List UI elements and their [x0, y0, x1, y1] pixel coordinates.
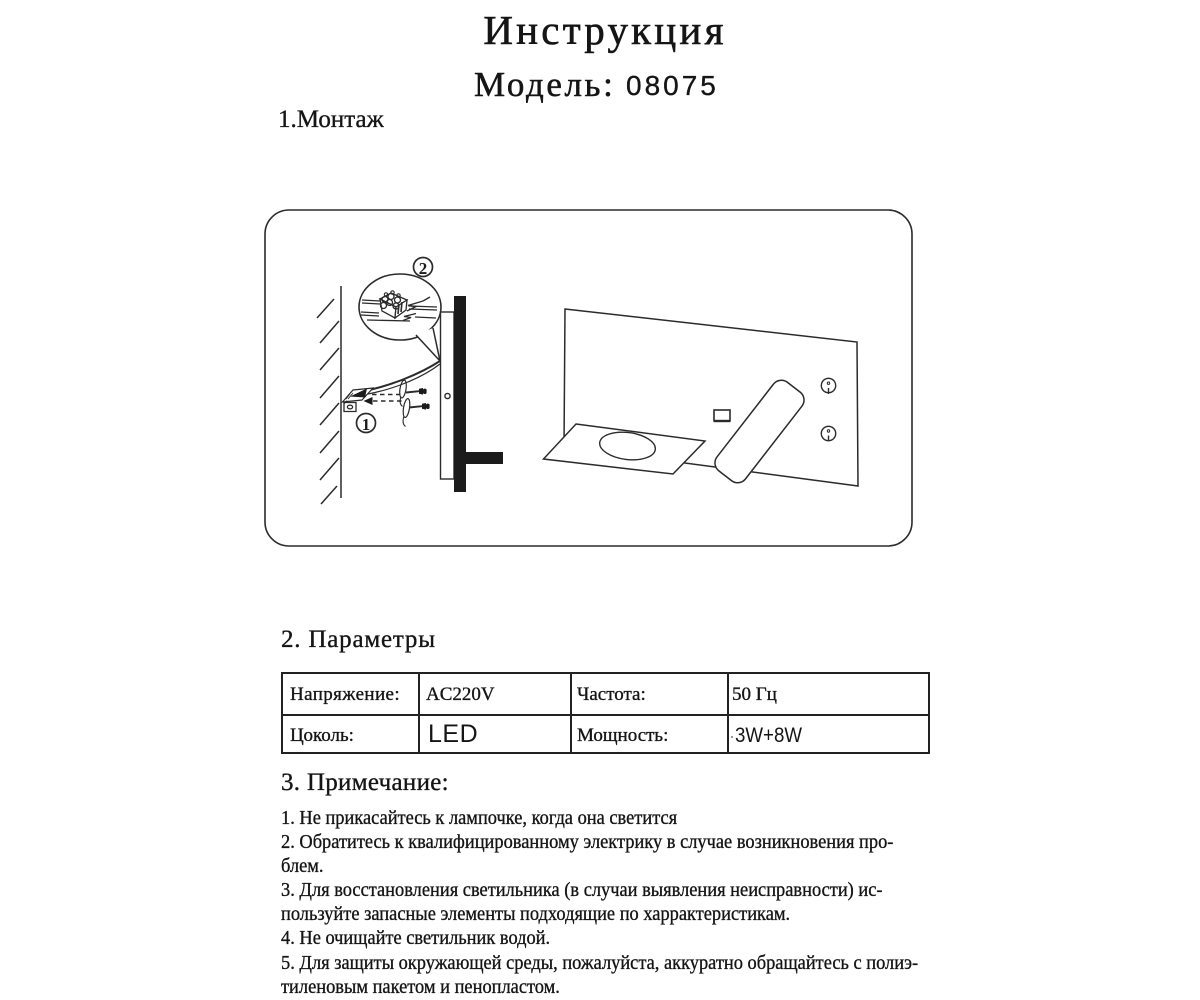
svg-text:2: 2: [419, 259, 428, 278]
svg-text:1: 1: [362, 415, 371, 434]
